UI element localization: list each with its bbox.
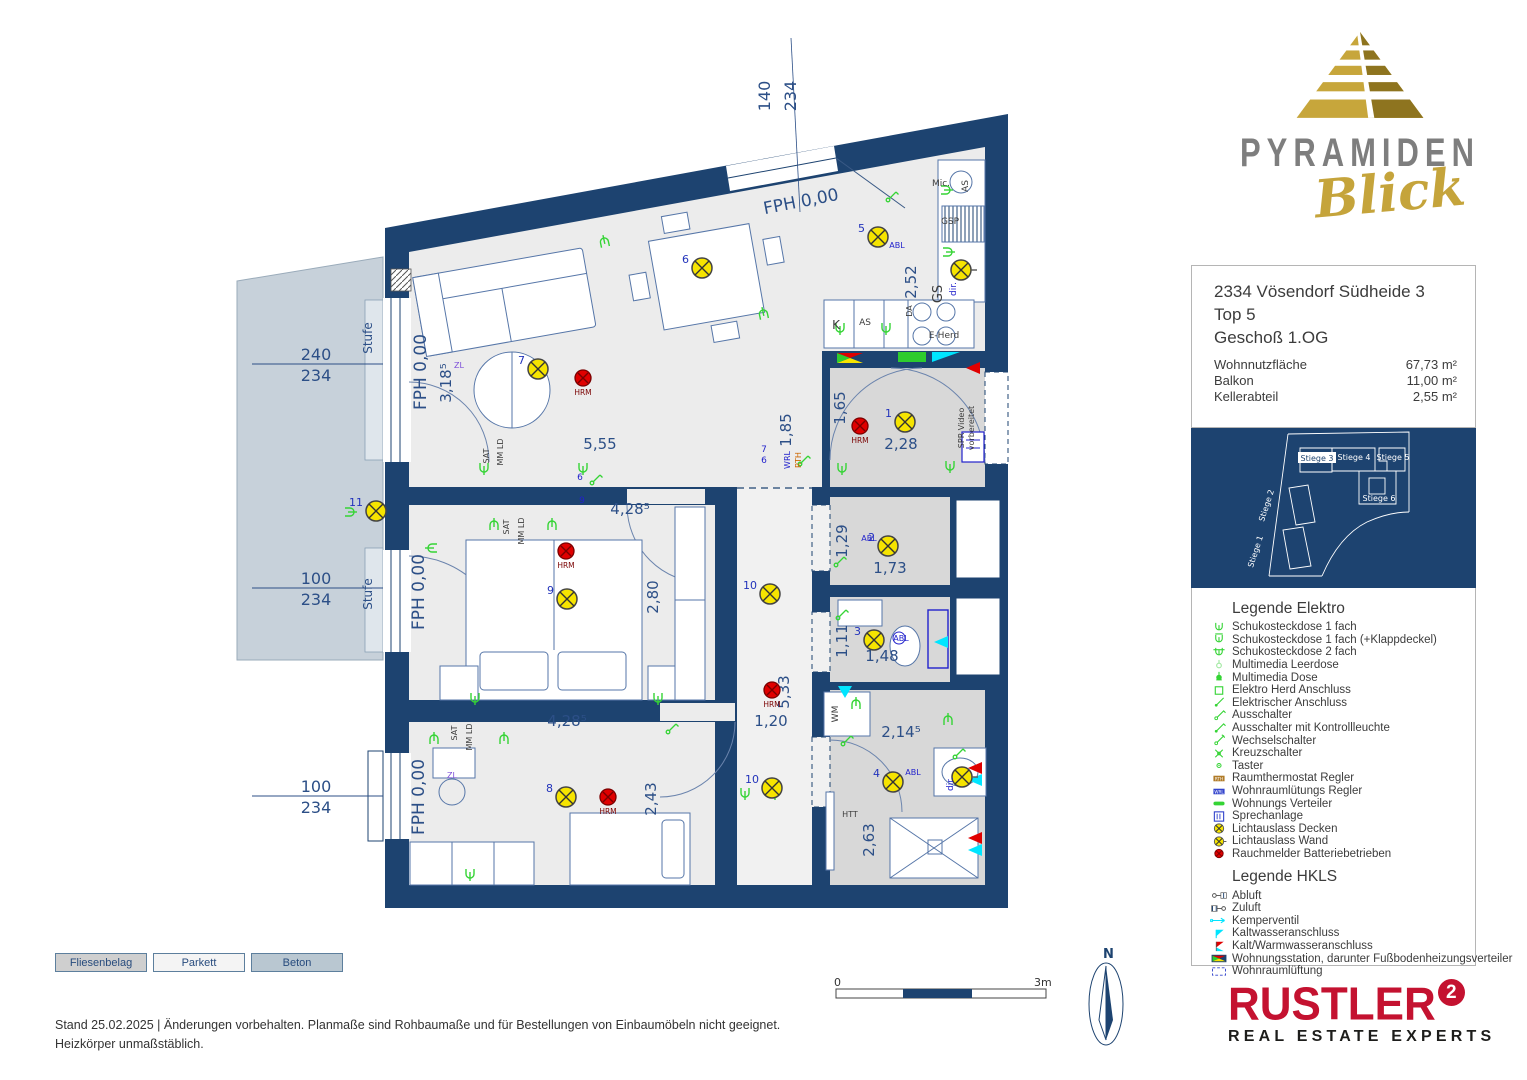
dimension-label: 5,55	[583, 435, 616, 453]
legend-item-label: Wohnungsstation, darunter Fußbodenheizun…	[1232, 953, 1512, 965]
legend-item-label: Zuluft	[1232, 902, 1261, 914]
plan-annotation: SAT	[502, 519, 511, 534]
legend-item: Taster	[1206, 760, 1475, 773]
plan-annotation: GS	[931, 285, 946, 303]
kemper-icon	[1206, 914, 1232, 927]
legend-item: Wohnungsstation, darunter Fußbodenheizun…	[1206, 952, 1475, 965]
siteplan-unit-label: Stiege 6	[1363, 494, 1396, 503]
pyramid-icon	[1285, 30, 1435, 122]
plan-annotation: ABL	[861, 534, 877, 543]
svg-text:240: 240	[301, 345, 332, 364]
material-chip: Beton	[251, 953, 343, 972]
plan-annotation: 6	[761, 456, 767, 466]
wst-icon	[1206, 952, 1232, 965]
svg-text:100: 100	[301, 777, 332, 796]
legend-item-label: Sprechanlage	[1232, 810, 1303, 822]
smoke-detector-icon: HRM	[851, 418, 868, 445]
svg-text:Stufe: Stufe	[361, 322, 375, 354]
dimension-label: 4,28⁵	[610, 500, 649, 518]
svg-text:3: 3	[854, 625, 861, 638]
legend-item: Kreuzschalter	[1206, 747, 1475, 760]
plan-annotation: SAT	[450, 725, 459, 740]
legend-item: Wohnungs Verteiler	[1206, 797, 1475, 810]
elan-icon	[1206, 696, 1232, 709]
legend-item-label: Elektro Herd Anschluss	[1232, 684, 1351, 696]
floor-height-label: FPH 0,00	[409, 759, 429, 835]
dimension-label: 4,28⁵	[547, 712, 586, 730]
dimension-label: 2,14⁵	[881, 723, 920, 741]
plan-annotation: WM	[831, 706, 841, 723]
area-row: Kellerabteil 2,55 m²	[1214, 389, 1457, 405]
bed-single	[570, 813, 690, 885]
legend-item-label: Wohnraumlütungs Regler	[1232, 785, 1362, 797]
plan-annotation: vorbereitet	[967, 406, 976, 450]
legend-hkls-title: Legende HKLS	[1232, 868, 1475, 886]
legend-item: Rauchmelder Batteriebetrieben	[1206, 848, 1475, 861]
legend-item-label: Schukosteckdose 1 fach	[1232, 621, 1357, 633]
plan-annotation: ABL	[889, 241, 905, 250]
legend-item: Ausschalter	[1206, 709, 1475, 722]
plan-annotation: dir.	[946, 777, 956, 791]
footnote-line2: Heizkörper unmaßstäblich.	[55, 1035, 780, 1054]
legend-item-label: Wohnungs Verteiler	[1232, 798, 1332, 810]
sock1k-icon	[1206, 633, 1232, 646]
plan-annotation: RTH	[794, 452, 803, 468]
rustler-logo: RUSTLER2 REAL ESTATE EXPERTS	[1228, 985, 1508, 1046]
mmdose-icon	[1206, 671, 1232, 684]
legend-item: Wohnraumlüftung	[1206, 965, 1475, 978]
footnote-line1: Stand 25.02.2025 | Änderungen vorbehalte…	[55, 1016, 780, 1035]
floor-height-label: FPH 0,00	[409, 554, 429, 630]
aus-icon	[1206, 709, 1232, 722]
dimension-label: 1,11	[833, 624, 851, 657]
wechsel-icon	[1206, 734, 1232, 747]
svg-text:11: 11	[349, 496, 363, 509]
dimension-label: 2,52	[902, 265, 920, 298]
scale-bar: 0 3m	[828, 975, 1058, 1005]
legend-item-label: Abluft	[1232, 890, 1261, 902]
herd-icon	[1206, 684, 1232, 697]
kreuz-icon	[1206, 747, 1232, 760]
legend-item-label: Lichtauslass Wand	[1232, 835, 1328, 847]
footnote: Stand 25.02.2025 | Änderungen vorbehalte…	[55, 1016, 780, 1054]
address: 2334 Vösendorf Südheide 3	[1214, 280, 1457, 303]
legend-item: Elektro Herd Anschluss	[1206, 684, 1475, 697]
plan-annotation: MM LD	[517, 518, 526, 545]
svg-text:9: 9	[547, 584, 554, 597]
svg-text:234: 234	[301, 590, 332, 609]
plan-annotation: K	[832, 318, 841, 332]
lichtd-icon	[1206, 822, 1232, 835]
legend-item-label: Schukosteckdose 2 fach	[1232, 646, 1357, 658]
lichtw-icon	[1206, 835, 1232, 848]
plan-annotation: WRL	[783, 451, 792, 469]
project-logo: PYRAMIDEN Blick	[1235, 30, 1485, 260]
rustler-name: RUSTLER	[1228, 984, 1436, 1026]
svg-text:Stufe: Stufe	[361, 578, 375, 610]
svg-text:Stiege 5: Stiege 5	[1377, 453, 1410, 462]
unit-info-box: 2334 Vösendorf Südheide 3 Top 5 Geschoß …	[1191, 265, 1476, 428]
svg-text:HRM: HRM	[851, 436, 868, 445]
legend-item-label: Schukosteckdose 1 fach (+Klappdeckel)	[1232, 634, 1437, 646]
legend-item: Kalt/Warmwasseranschluss	[1206, 940, 1475, 953]
site-plan: Stiege 1Stiege 2Stiege 3Stiege 4Stiege 5…	[1191, 428, 1476, 588]
legend-item-label: Kemperventil	[1232, 915, 1299, 927]
legend-item: Wechselschalter	[1206, 734, 1475, 747]
legend-item: Ausschalter mit Kontrollleuchte	[1206, 722, 1475, 735]
plan-annotation: HTT	[842, 810, 858, 819]
legend-item: Multimedia Dose	[1206, 671, 1475, 684]
legend-item: Zuluft	[1206, 902, 1475, 915]
legend-box: Legende Elektro Schukosteckdose 1 fach S…	[1191, 588, 1476, 966]
dimension-label: 1,65	[831, 391, 849, 424]
plan-annotation: Mic.	[932, 179, 950, 189]
dimension-label: 2,28	[884, 435, 917, 453]
rauch-icon	[1206, 847, 1232, 860]
floor-height-label: FPH 0,00	[411, 334, 431, 410]
window-dimension: 100234	[252, 777, 383, 817]
svg-text:Stiege 6: Stiege 6	[1363, 494, 1396, 503]
dimension-label: 2,80	[644, 580, 662, 613]
legend-item: WRL Wohnraumlütungs Regler	[1206, 785, 1475, 798]
siteplan-unit-label: Stiege 3	[1298, 452, 1336, 463]
north-compass: N	[1085, 946, 1131, 1050]
area-table: Wohnnutzfläche 67,73 m²Balkon 11,00 m²Ke…	[1214, 357, 1457, 405]
plan-annotation: MM LD	[496, 439, 505, 466]
smoke-detector-icon: HRM	[763, 682, 780, 709]
svg-text:HRM: HRM	[557, 561, 574, 570]
legend-item: Abluft	[1206, 889, 1475, 902]
smoke-detector-icon: HRM	[557, 543, 574, 570]
legend-elektro-items: Schukosteckdose 1 fach Schukosteckdose 1…	[1206, 621, 1475, 860]
legend-item: Lichtauslass Wand	[1206, 835, 1475, 848]
vert-icon	[1206, 797, 1232, 810]
plan-annotation: AS	[961, 180, 971, 192]
rustler-sup: 2	[1438, 979, 1465, 1006]
svg-text:5: 5	[858, 222, 865, 235]
rth-icon: RTH	[1206, 772, 1232, 785]
plan-annotation: 9	[579, 496, 585, 506]
kww-icon	[1206, 939, 1232, 952]
legend-item: Elektrischer Anschluss	[1206, 697, 1475, 710]
area-value: 67,73 m²	[1371, 357, 1457, 373]
mmleer-icon	[1206, 659, 1232, 672]
area-label: Balkon	[1214, 373, 1371, 389]
wrlu-icon	[1206, 965, 1232, 978]
plan-annotation: GSP	[941, 217, 960, 227]
dimension-label: 1,20	[754, 712, 787, 730]
material-chip: Parkett	[153, 953, 245, 972]
legend-item-label: Ausschalter	[1232, 709, 1292, 721]
wrl-icon: WRL	[1206, 785, 1232, 798]
legend-item-label: Lichtauslass Decken	[1232, 823, 1337, 835]
smoke-detector-icon: HRM	[599, 789, 616, 816]
svg-text:WRL: WRL	[1214, 789, 1224, 794]
legend-item-label: Taster	[1232, 760, 1263, 772]
legend-item: Schukosteckdose 1 fach (+Klappdeckel)	[1206, 634, 1475, 647]
plan-annotation: AS	[859, 318, 871, 328]
unit: Top 5	[1214, 303, 1457, 326]
area-row: Balkon 11,00 m²	[1214, 373, 1457, 389]
plan-annotation: MM LD	[465, 724, 474, 751]
area-label: Wohnnutzfläche	[1214, 357, 1371, 373]
area-value: 11,00 m²	[1371, 373, 1457, 389]
legend-item: Multimedia Leerdose	[1206, 659, 1475, 672]
floor: Geschoß 1.OG	[1214, 326, 1457, 349]
dimension-label: 3,18⁵	[437, 363, 455, 402]
sock2-icon	[1206, 646, 1232, 659]
floor-plan: 5,553,18⁵2,521,851,652,281,291,731,111,4…	[0, 0, 1140, 1080]
legend-item-label: Kaltwasseranschluss	[1232, 927, 1339, 939]
plan-annotation: E-Herd	[929, 331, 960, 341]
plan-annotation: SPR Video	[957, 408, 966, 449]
svg-text:Stiege 4: Stiege 4	[1338, 453, 1371, 462]
area-value: 2,55 m²	[1371, 389, 1457, 405]
window-dimension: 140	[755, 81, 774, 112]
legend-item-label: Multimedia Dose	[1232, 672, 1318, 684]
svg-text:234: 234	[301, 798, 332, 817]
svg-text:HRM: HRM	[574, 388, 591, 397]
svg-text:234: 234	[301, 366, 332, 385]
area-label: Kellerabteil	[1214, 389, 1371, 405]
legend-item: Kemperventil	[1206, 914, 1475, 927]
kw-icon	[1206, 927, 1232, 940]
legend-item: Schukosteckdose 1 fach	[1206, 621, 1475, 634]
svg-text:1: 1	[885, 407, 892, 420]
legend-item: Lichtauslass Decken	[1206, 823, 1475, 836]
north-label: N	[1103, 947, 1114, 962]
window-dimension: 234	[781, 81, 800, 112]
legend-item: RTH Raumthermostat Regler	[1206, 772, 1475, 785]
legend-item: Sprechanlage	[1206, 810, 1475, 823]
sock1-icon	[1206, 621, 1232, 634]
legend-item-label: Elektrischer Anschluss	[1232, 697, 1347, 709]
plan-annotation: dir.	[949, 282, 959, 296]
smoke-detector-icon: HRM	[574, 370, 591, 397]
wardrobe-2	[410, 842, 534, 885]
sprech-icon	[1206, 810, 1232, 823]
svg-text:100: 100	[301, 569, 332, 588]
plan-annotation: ZL	[454, 361, 464, 370]
svg-text:7: 7	[518, 354, 525, 367]
scale-end: 3m	[1034, 976, 1052, 989]
material-legend: FliesenbelagParkettBeton	[55, 953, 343, 972]
legend-item-label: Multimedia Leerdose	[1232, 659, 1339, 671]
rustler-tagline: REAL ESTATE EXPERTS	[1228, 1028, 1508, 1046]
plan-annotation: SAT	[482, 448, 491, 463]
legend-item-label: Rauchmelder Batteriebetrieben	[1232, 848, 1391, 860]
material-chip: Fliesenbelag	[55, 953, 147, 972]
legend-item: Schukosteckdose 2 fach	[1206, 646, 1475, 659]
legend-item-label: Raumthermostat Regler	[1232, 772, 1354, 784]
plan-annotation: 7	[761, 445, 767, 455]
scale-start: 0	[834, 976, 841, 989]
abluft-icon	[1206, 889, 1232, 902]
svg-text:Stiege 3: Stiege 3	[1301, 454, 1334, 463]
svg-text:HRM: HRM	[599, 807, 616, 816]
dimension-label: 1,73	[873, 559, 906, 577]
svg-text:10: 10	[745, 773, 759, 786]
plan-annotation: 6	[577, 473, 583, 483]
dimension-label: 1,29	[833, 524, 851, 557]
plan-annotation: ZL	[447, 771, 457, 780]
svg-text:4: 4	[873, 767, 880, 780]
dimension-label: 2,43	[642, 782, 660, 815]
legend-item-label: Kreuzschalter	[1232, 747, 1302, 759]
area-row: Wohnnutzfläche 67,73 m²	[1214, 357, 1457, 373]
legend-elektro-title: Legende Elektro	[1232, 600, 1475, 618]
legend-item-label: Ausschalter mit Kontrollleuchte	[1232, 722, 1390, 734]
legend-hkls-items: Abluft Zuluft Kemperventil Kaltwasserans…	[1206, 889, 1475, 977]
legend-item-label: Wohnraumlüftung	[1232, 965, 1323, 977]
svg-text:HRM: HRM	[763, 700, 780, 709]
taster-icon	[1206, 759, 1232, 772]
zuluft-icon	[1206, 902, 1232, 915]
svg-text:10: 10	[743, 579, 757, 592]
siteplan-unit-label: Stiege 5	[1377, 453, 1410, 462]
wardrobe	[675, 507, 705, 700]
svg-text:8: 8	[546, 782, 553, 795]
svg-text:RTH: RTH	[1215, 776, 1223, 781]
plan-annotation: ABL	[893, 634, 909, 643]
dimension-label: 2,63	[860, 823, 878, 856]
siteplan-unit-label: Stiege 4	[1338, 453, 1371, 462]
plan-annotation: ABL	[905, 768, 921, 777]
plan-annotation: DA	[905, 305, 914, 317]
dimension-label: 1,85	[777, 413, 795, 446]
ausk-icon	[1206, 722, 1232, 735]
legend-item-label: Wechselschalter	[1232, 735, 1316, 747]
legend-item-label: Kalt/Warmwasseranschluss	[1232, 940, 1373, 952]
legend-item: Kaltwasseranschluss	[1206, 927, 1475, 940]
svg-text:6: 6	[682, 253, 689, 266]
